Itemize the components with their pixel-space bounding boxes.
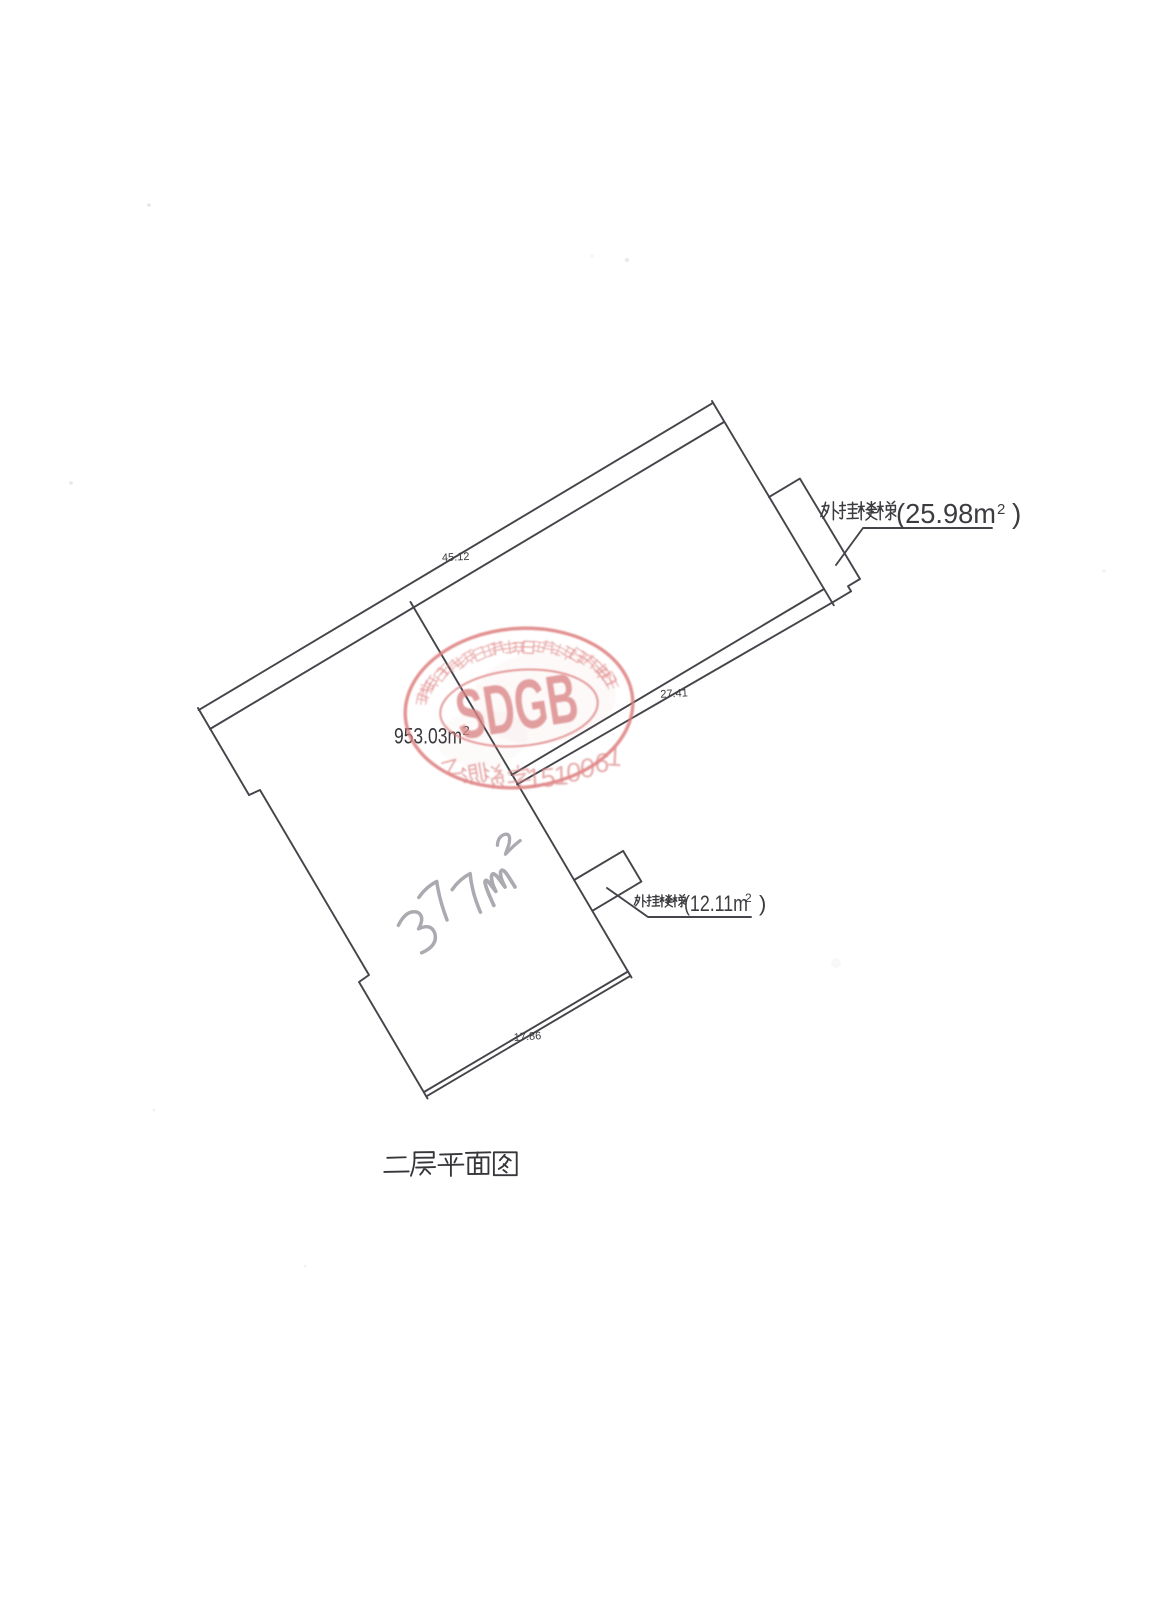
svg-text:1: 1 [606,741,623,772]
svg-text:): ) [1012,498,1021,529]
svg-text:2: 2 [997,501,1005,518]
svg-text:(12.11m: (12.11m [684,891,748,916]
svg-text:(25.98m: (25.98m [896,498,996,529]
svg-text:): ) [759,891,766,916]
svg-text:45.12: 45.12 [442,551,470,564]
svg-text:2: 2 [745,891,752,905]
svg-text:27.41: 27.41 [660,687,688,700]
svg-text:0: 0 [580,753,596,783]
svg-text:17.86: 17.86 [513,1030,541,1044]
